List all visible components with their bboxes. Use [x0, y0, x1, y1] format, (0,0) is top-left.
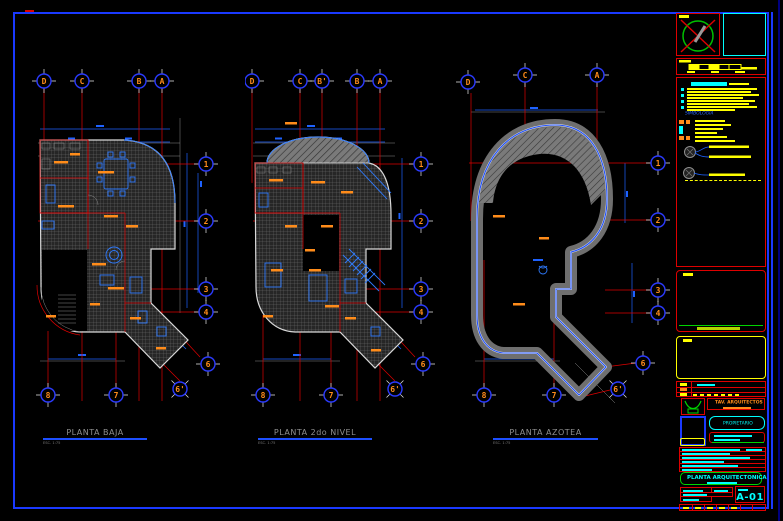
- svg-text:A: A: [160, 77, 165, 86]
- legend-chip: [679, 120, 684, 124]
- owner-label: PROPIETARIO: [723, 421, 753, 426]
- svg-text:7: 7: [329, 391, 334, 400]
- note-bullet: [681, 88, 684, 91]
- grid-bubble: D: [32, 69, 56, 93]
- grid-bubble: D: [456, 70, 480, 94]
- rev-chip: [680, 388, 687, 391]
- grid-bubble: B: [127, 69, 151, 93]
- grid-bubble: 2: [646, 208, 670, 232]
- svg-text:2: 2: [419, 217, 424, 226]
- grid-bubble: 8: [36, 383, 60, 407]
- floor-plan-planta-azotea: D C A 1 2 3 4 6 6' 8 7: [455, 63, 670, 428]
- svg-text:8: 8: [261, 391, 266, 400]
- svg-text:2: 2: [204, 217, 209, 226]
- rev-entry: [697, 384, 715, 386]
- svg-text:4: 4: [204, 308, 209, 317]
- caption-planta-azotea: PLANTA AZOTEA ESC. 1:75: [493, 428, 598, 450]
- signature-table: [680, 487, 733, 502]
- grid-bubble: A: [585, 63, 609, 87]
- svg-text:1: 1: [419, 160, 424, 169]
- note-line: [687, 103, 749, 105]
- firm-underline: [723, 407, 751, 409]
- svg-text:7: 7: [114, 391, 119, 400]
- caption-planta-2do-nivel: PLANTA 2do NIVEL ESC. 1:75: [258, 428, 372, 450]
- note-line: [729, 83, 749, 85]
- firm-logo-box: [681, 398, 705, 415]
- project-title: PLANTA ARQUITECTONICA: [687, 474, 767, 480]
- sheet-label-bar: [738, 489, 748, 491]
- svg-text:C: C: [298, 77, 303, 86]
- grid-bubble: A: [150, 69, 174, 93]
- svg-text:D: D: [466, 78, 471, 87]
- svg-text:A: A: [378, 77, 383, 86]
- north-symbol-icon: [677, 14, 719, 55]
- grid-bubble: 7: [104, 383, 128, 407]
- svg-text:6: 6: [206, 360, 211, 369]
- revision-table: [676, 381, 766, 397]
- note-bullet: [681, 100, 684, 103]
- north-symbol-box: [676, 13, 720, 56]
- caption-planta-baja: PLANTA BAJA ESC. 1:75: [43, 428, 147, 450]
- note-line: [687, 94, 759, 96]
- sheet-edge-line: [778, 0, 780, 521]
- legend-line: [695, 132, 717, 134]
- svg-text:8: 8: [46, 391, 51, 400]
- bottom-cell-strip: [679, 504, 766, 511]
- rev-dash: [700, 394, 704, 396]
- note-line: [687, 91, 751, 93]
- legend-title: SIMBOLOGIA: [685, 111, 714, 116]
- firm-name-box: TAV. ARQUITECTOS: [707, 398, 765, 410]
- grid-bubble: 3: [194, 277, 218, 301]
- plan-scale-note: ESC. 1:75: [43, 441, 90, 445]
- svg-text:4: 4: [419, 308, 424, 317]
- svg-text:B: B: [355, 77, 360, 86]
- grid-bubble: 6: [196, 352, 220, 376]
- grid-bubble: 1: [646, 151, 670, 175]
- detail-frame-yellow: [676, 336, 766, 379]
- grid-bubbles: D C A 1 2 3 4 6 6' 8 7: [456, 63, 670, 407]
- rev-dash: [693, 394, 697, 396]
- note-bullet: [681, 94, 684, 97]
- legend-symbols: [679, 144, 765, 184]
- frame-green-rule: [679, 325, 763, 326]
- svg-text:6': 6': [175, 385, 185, 394]
- grid-bubble: B': [310, 69, 334, 93]
- caption-underline: [43, 438, 147, 440]
- svg-text:6': 6': [390, 385, 400, 394]
- legend-line: [695, 120, 725, 122]
- note-line: [687, 106, 757, 108]
- note-line: [687, 100, 755, 102]
- detail-frame-red: [676, 270, 766, 332]
- svg-text:D: D: [42, 77, 47, 86]
- grid-bubble: 2: [194, 209, 218, 233]
- notes-dashed-rule: [685, 180, 761, 181]
- frame-caption-bar: [697, 327, 740, 330]
- building-outline: [37, 140, 188, 368]
- grid-bubble: D: [245, 69, 264, 93]
- sheet-trim-line: [771, 12, 773, 509]
- svg-text:1: 1: [204, 160, 209, 169]
- caption-underline: [493, 438, 598, 440]
- plan-title: PLANTA 2do NIVEL: [258, 428, 372, 437]
- note-line: [687, 97, 743, 99]
- svg-text:1: 1: [656, 159, 661, 168]
- svg-text:C: C: [80, 77, 85, 86]
- grid-bubble: 1: [409, 152, 433, 176]
- grid-bubble: 4: [646, 301, 670, 325]
- svg-text:3: 3: [204, 285, 209, 294]
- note-bullet: [681, 106, 684, 109]
- rev-dash: [728, 394, 732, 396]
- project-data-rows: [679, 447, 766, 472]
- plan-scale-note: ESC. 1:75: [258, 441, 309, 445]
- notes-box: SIMBOLOGIA: [676, 77, 766, 267]
- svg-text:A: A: [595, 71, 600, 80]
- roof-details: [493, 215, 549, 306]
- svg-text:B': B': [317, 77, 327, 86]
- frame-label: [683, 273, 693, 276]
- plan-scale-note: ESC. 1:75: [493, 441, 540, 445]
- rev-dash: [714, 394, 718, 396]
- grid-bubble: 2: [409, 209, 433, 233]
- svg-text:6': 6': [613, 385, 623, 394]
- sheet-code: A-01: [736, 492, 764, 503]
- plan-title: PLANTA AZOTEA: [493, 428, 598, 437]
- cad-sheet: D C B A 1 2 3 4 6 6' 8 7: [0, 0, 783, 521]
- svg-text:D: D: [250, 77, 255, 86]
- svg-text:6: 6: [641, 359, 646, 368]
- grid-bubble: 6: [631, 351, 655, 375]
- frame-label: [683, 339, 692, 342]
- detail-box: [723, 13, 766, 56]
- grid-bubble: C: [288, 69, 312, 93]
- address-box: [709, 432, 765, 443]
- legend-chip: [679, 126, 683, 134]
- svg-text:C: C: [523, 71, 528, 80]
- rev-dash: [707, 394, 711, 396]
- svg-text:6: 6: [421, 360, 426, 369]
- grid-bubble: 3: [646, 278, 670, 302]
- svg-text:3: 3: [419, 285, 424, 294]
- svg-text:4: 4: [656, 309, 661, 318]
- stamp-box: [680, 438, 705, 446]
- rev-dash: [721, 394, 725, 396]
- scale-bar-box: [676, 58, 766, 75]
- legend-chip: [686, 136, 690, 140]
- legend-chip: [679, 136, 684, 140]
- grid-bubble: 6': [378, 372, 412, 406]
- grid-bubble: 1: [194, 152, 218, 176]
- plan-title: PLANTA BAJA: [43, 428, 147, 437]
- legend-line: [695, 136, 727, 138]
- svg-text:2: 2: [656, 216, 661, 225]
- floor-plan-planta-baja: D C B A 1 2 3 4 6 6' 8 7: [30, 63, 230, 428]
- rev-dash: [735, 394, 739, 396]
- note-line: [687, 88, 757, 90]
- rev-chip: [680, 393, 687, 396]
- legend-line: [695, 124, 731, 126]
- grid-bubble: 4: [409, 300, 433, 324]
- project-title-box: PLANTA ARQUITECTONICA: [680, 472, 762, 485]
- sheet-number-box: A-01: [735, 486, 765, 503]
- grid-bubble: B: [345, 69, 369, 93]
- scale-bar-icon: [677, 59, 765, 74]
- grid-bubble: 7: [319, 383, 343, 407]
- firm-name: TAV. ARQUITECTOS: [715, 400, 763, 405]
- grid-bubble: C: [70, 69, 94, 93]
- rev-chip: [680, 383, 687, 386]
- grid-bubble: 8: [472, 383, 496, 407]
- legend-line: [695, 140, 735, 142]
- grid-bubble: 6: [411, 352, 435, 376]
- svg-text:7: 7: [552, 391, 557, 400]
- project-subtitle-bar: [707, 482, 737, 484]
- grid-bubble: 3: [409, 277, 433, 301]
- grid-bubble: 6': [601, 372, 635, 406]
- legend-chip: [686, 120, 690, 124]
- notes-heading-bar: [691, 82, 727, 86]
- caption-underline: [258, 438, 372, 440]
- grid-bubble: C: [513, 63, 537, 87]
- firm-logo-icon: [682, 399, 704, 414]
- grid-bubble: 4: [194, 300, 218, 324]
- owner-box: PROPIETARIO: [709, 416, 765, 430]
- grid-bubble: 6': [163, 372, 197, 406]
- grid-bubble: A: [368, 69, 392, 93]
- grid-bubble: 8: [251, 383, 275, 407]
- svg-text:B: B: [137, 77, 142, 86]
- floor-plan-planta-2do-nivel: D C B' B A 1 2 3 4 6 6' 8 7: [245, 63, 445, 428]
- legend-line: [695, 128, 723, 130]
- corner-mark: [25, 10, 34, 12]
- svg-text:8: 8: [482, 391, 487, 400]
- svg-text:3: 3: [656, 286, 661, 295]
